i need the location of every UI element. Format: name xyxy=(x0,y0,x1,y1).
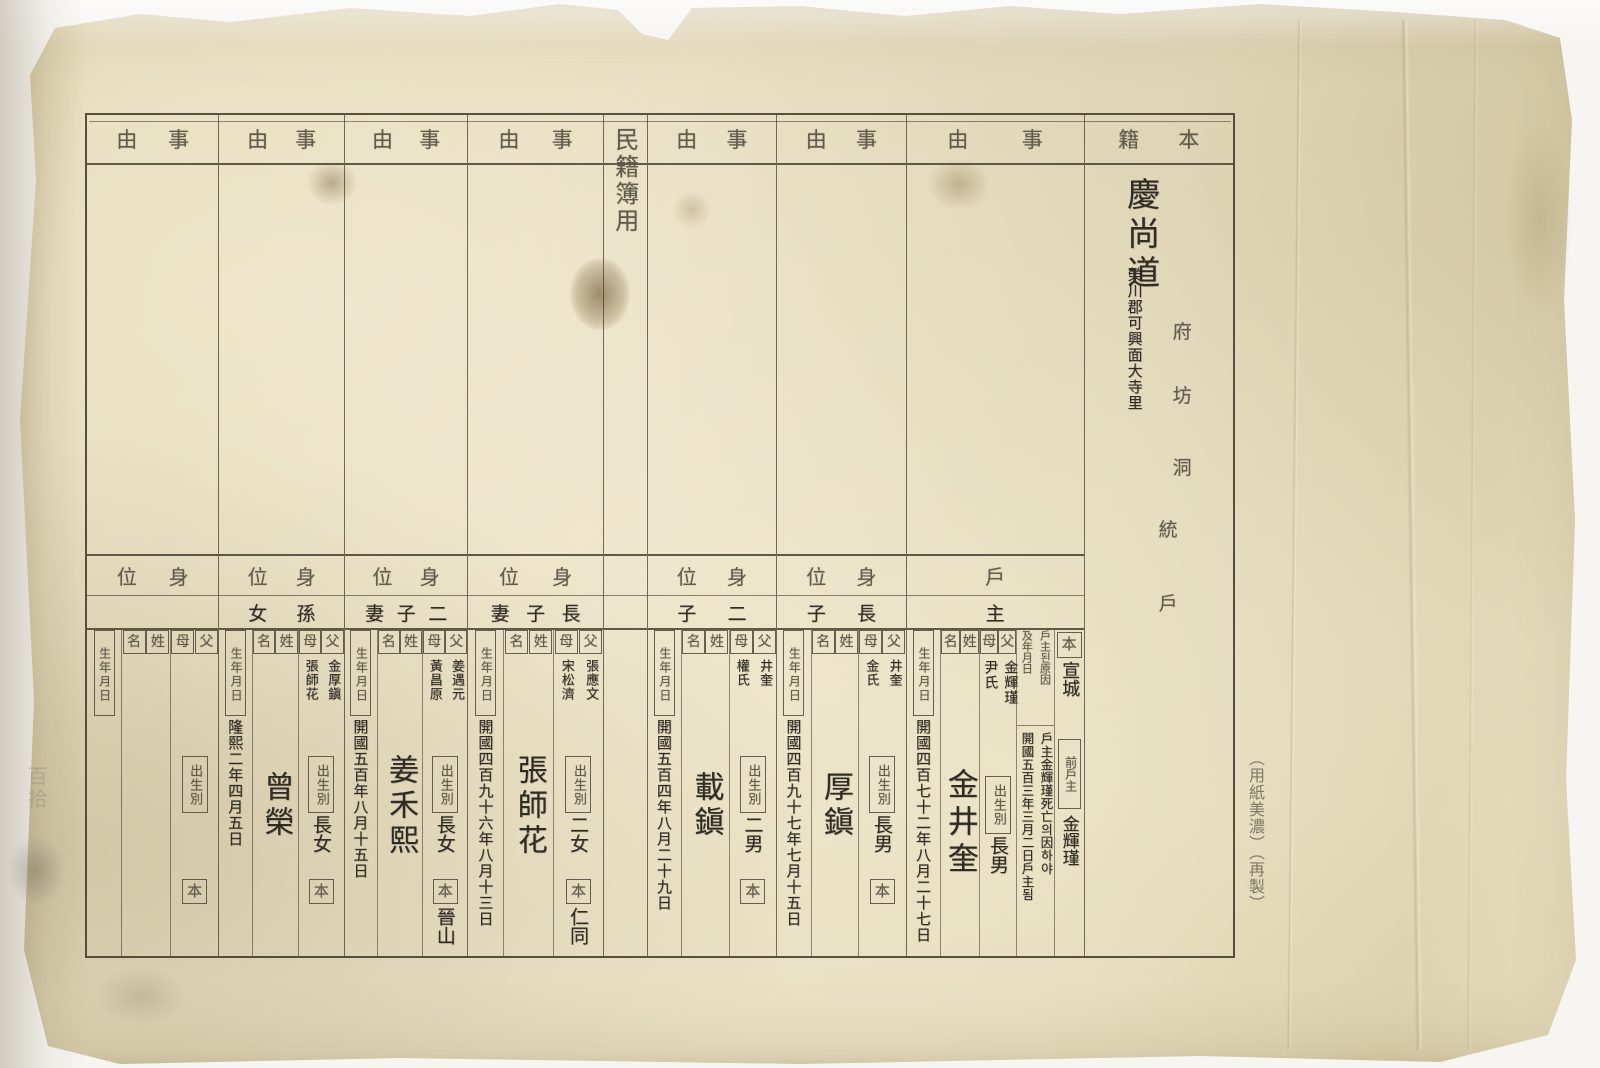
second-son-wife-column: 事由 身位 二子妻 父 母 姜遇元 黃昌原 出生別 長女 本 晉山 xyxy=(344,115,467,956)
member-name: 厚鎭 xyxy=(813,656,857,956)
name-headers: 姓 名 xyxy=(682,630,729,656)
granddaughter-column: 事由 身位 孫女 父 母 金厚鎭 張師花 出生別 長女 本 姓 xyxy=(218,115,343,956)
prev-householder-header: 前戶主 xyxy=(1058,739,1081,809)
template-ho: 戶 xyxy=(1159,589,1178,616)
eldest-son-column: 事由 身位 長子 父 母 井奎 金氏 出生別 長男 本 姓 xyxy=(776,115,905,956)
birth-order-value: 長女 xyxy=(432,815,459,877)
ho-header: 戶 xyxy=(907,554,1084,596)
mother-name: 黃昌原 xyxy=(425,659,444,756)
mother-header: 母 xyxy=(423,630,445,654)
parents-names xyxy=(171,655,219,756)
birth-order-stamp: 出生別 xyxy=(985,776,1011,834)
address-body: 慶尚道 榮川郡可興面大寺里 府 坊 洞 統 戶 xyxy=(1085,165,1233,956)
householder-name: 金井奎 xyxy=(938,656,983,956)
mother-header: 母 xyxy=(299,630,322,654)
father-name: 井奎 xyxy=(755,659,774,756)
birthdate-value: 開國四百七十二年八月二十七日 xyxy=(913,719,934,951)
name-headers: 姓 名 xyxy=(504,630,553,656)
jiyu-blank-area xyxy=(87,165,218,554)
father-name: 張應文 xyxy=(581,659,600,756)
template-tong: 統 xyxy=(1159,515,1178,542)
birthdate-subcolumn: 生年月日 開國五百四年八月二十九日 xyxy=(648,630,681,956)
empty-member-column: 事由 身位 父 母 出生別 本 姓 名 xyxy=(87,115,218,956)
status-value: 孫女 xyxy=(219,596,343,630)
member-name: 姜禾熙 xyxy=(378,656,422,956)
parents-headers: 父 母 xyxy=(423,630,467,655)
bon-stamp: 本 xyxy=(1057,632,1082,658)
birthdate-subcolumn: 生年月日 xyxy=(87,630,121,956)
jiyu-header: 事由 xyxy=(219,115,343,165)
parents-subcolumn: 父 母 金厚鎭 張師花 出生別 長女 本 xyxy=(298,630,344,956)
jiyu-header: 事由 xyxy=(907,115,1084,165)
honseki-header: 本籍 xyxy=(1085,115,1233,165)
mother-header: 母 xyxy=(171,630,194,654)
parents-subcolumn: 父 母 井奎 金氏 出生別 長男 本 xyxy=(858,630,906,956)
member-name: 載鎭 xyxy=(683,656,727,956)
status-header: 身位 xyxy=(345,554,467,596)
birthdate-subcolumn: 生年月日 開國五百年八月十五日 xyxy=(345,630,377,956)
parents-headers: 父 母 xyxy=(554,630,603,655)
parents-subcolumn: 父 母 出生別 本 xyxy=(170,630,219,956)
surname-header: 姓 xyxy=(705,630,728,654)
father-header: 父 xyxy=(321,630,344,654)
birthdate-subcolumn: 生年月日 開國四百九十六年八月十三日 xyxy=(468,630,503,956)
member-data: 父 母 出生別 本 姓 名 生年月日 xyxy=(87,630,218,956)
jiyu-header: 事由 xyxy=(345,115,467,165)
surname-header: 姓 xyxy=(835,630,858,654)
faint-bleedthrough-text: 百拾 xyxy=(22,766,51,810)
jiyu-header: 事由 xyxy=(777,115,905,165)
mother-name: 宋松濟 xyxy=(557,659,576,756)
birthdate-header: 生年月日 xyxy=(225,630,246,716)
householder-column: 事由 戶 主 本 宣城 前戶主 金輝瑾 戶主된原因 及年月日 戶主金輝瑾死亡의因… xyxy=(906,115,1084,956)
parents-subcolumn: 父 母 姜遇元 黃昌原 出生別 長女 本 晉山 xyxy=(422,630,467,956)
status-header: 身位 xyxy=(468,554,602,596)
name-subcolumn: 姓 名 姜禾熙 xyxy=(377,630,422,956)
address-detail: 榮川郡可興面大寺里 xyxy=(1125,267,1146,657)
name-subcolumn: 姓 名 厚鎭 xyxy=(811,630,859,956)
prev-householder-name: 金輝瑾 xyxy=(1057,815,1082,935)
form-title-status-band xyxy=(604,554,647,596)
birthdate-header: 生年月日 xyxy=(94,630,115,716)
birth-order-stamp: 出生別 xyxy=(869,756,895,812)
smudge xyxy=(1504,120,1574,320)
father-header: 父 xyxy=(882,630,905,654)
parents-subcolumn: 父 母 金輝瑾 尹氏 出生別 長男 xyxy=(979,630,1016,956)
givenname-header: 名 xyxy=(123,630,146,654)
status-header: 身位 xyxy=(777,554,905,596)
bon-prev-householder-subcolumn: 本 宣城 前戶主 金輝瑾 xyxy=(1054,630,1084,956)
father-header: 父 xyxy=(195,630,218,654)
torn-top-edge-highlight xyxy=(0,0,1600,46)
mother-header: 母 xyxy=(859,630,882,654)
birth-order-value: 長男 xyxy=(869,815,896,877)
jiyu-blank-area xyxy=(907,165,1084,554)
birth-order-stamp: 出生別 xyxy=(740,756,766,812)
father-header: 父 xyxy=(579,630,602,654)
birthdate-value: 開國五百四年八月二十九日 xyxy=(654,719,675,951)
surname-header: 姓 xyxy=(529,630,552,654)
birthdate-subcolumn: 生年月日 開國四百七十二年八月二十七日 xyxy=(907,630,941,956)
smudge xyxy=(8,836,64,906)
birth-order-stamp: 出生別 xyxy=(308,756,334,812)
name-headers: 姓 名 xyxy=(941,630,979,656)
reason-text-line2: 開國五百三年三月二日戶主됨 xyxy=(1017,732,1036,956)
parents-names: 井奎 金氏 xyxy=(859,655,906,756)
birth-order-stamp: 出生別 xyxy=(182,756,208,812)
clan-name: 仁同 xyxy=(565,907,592,956)
birthdate-header: 生年月日 xyxy=(913,630,934,716)
status-value xyxy=(87,596,218,630)
form-title-column: 民籍簿用 xyxy=(603,115,647,956)
mother-header: 母 xyxy=(980,630,998,654)
parents-names: 井奎 權氏 xyxy=(730,655,777,756)
name-subcolumn: 姓 名 曾榮 xyxy=(252,630,298,956)
paper-spec-stamp: （用紙美濃）（再製） xyxy=(1243,750,1267,912)
member-name: 張師花 xyxy=(507,656,551,956)
form-title-value-band xyxy=(604,596,647,630)
name-headers: 姓 名 xyxy=(122,630,170,656)
template-fu: 府 xyxy=(1173,317,1192,344)
parents-names: 張應文 宋松濟 xyxy=(554,655,603,756)
birth-order-value: 長男 xyxy=(985,836,1012,900)
register-table: 本籍 慶尚道 榮川郡可興面大寺里 府 坊 洞 統 戶 事由 戶 主 本 宣城 前… xyxy=(85,113,1235,958)
father-name: 井奎 xyxy=(884,659,903,756)
birthdate-value: 開國四百九十六年八月十三日 xyxy=(475,719,496,951)
givenname-header: 名 xyxy=(378,630,400,654)
parents-headers: 父 母 xyxy=(171,630,219,655)
smudge xyxy=(96,966,186,1026)
mother-name: 張師花 xyxy=(301,659,320,756)
bon-stamp: 本 xyxy=(566,879,591,904)
name-headers: 姓 名 xyxy=(378,630,422,656)
givenname-header: 名 xyxy=(682,630,705,654)
jiyu-blank-area xyxy=(777,165,905,554)
name-headers: 姓 名 xyxy=(812,630,859,656)
bon-stamp: 本 xyxy=(740,879,765,904)
surname-header: 姓 xyxy=(960,630,979,654)
parents-names: 金輝瑾 尹氏 xyxy=(980,656,1016,776)
father-name: 姜遇元 xyxy=(447,659,466,756)
bon-stamp: 本 xyxy=(309,879,334,904)
status-header: 身位 xyxy=(219,554,343,596)
jiyu-blank-area xyxy=(219,165,343,554)
eldest-son-wife-column: 事由 身位 長子妻 父 母 張應文 宋松濟 出生別 二女 本 仁同 xyxy=(467,115,602,956)
jiyu-header: 事由 xyxy=(648,115,776,165)
status-header: 身位 xyxy=(648,554,776,596)
clan-name: 晉山 xyxy=(432,907,459,956)
father-header: 父 xyxy=(998,630,1016,654)
template-bang: 坊 xyxy=(1173,381,1192,408)
birth-order-stamp: 出生別 xyxy=(432,756,458,812)
birthdate-value: 隆熙二年四月五日 xyxy=(225,719,246,951)
reason-header: 戶主된原因 及年月日 xyxy=(1017,630,1053,726)
member-data: 父 母 井奎 權氏 出生別 二男 本 姓 名 載鎭 生年 xyxy=(648,630,776,956)
birth-order-value: 二女 xyxy=(565,815,592,877)
bon-stamp: 本 xyxy=(182,879,207,904)
mother-header: 母 xyxy=(730,630,753,654)
birthdate-subcolumn: 生年月日 開國四百九十七年七月十五日 xyxy=(777,630,810,956)
reason-header-line1: 戶主된原因 xyxy=(1037,630,1053,725)
status-value: 長子 xyxy=(777,596,905,630)
givenname-header: 名 xyxy=(505,630,528,654)
status-value: 長子妻 xyxy=(468,596,602,630)
mother-name: 金氏 xyxy=(861,659,880,756)
name-subcolumn: 姓 名 張師花 xyxy=(503,630,553,956)
status-header: 身位 xyxy=(87,554,218,596)
name-subcolumn: 姓 名 xyxy=(121,630,170,956)
jiyu-blank-area xyxy=(468,165,602,554)
birthdate-header: 生年月日 xyxy=(475,630,496,716)
jiyu-blank-area xyxy=(345,165,467,554)
member-data: 父 母 井奎 金氏 出生別 長男 本 姓 名 厚鎭 生年 xyxy=(777,630,905,956)
status-value: 二子妻 xyxy=(345,596,467,630)
address-column: 本籍 慶尚道 榮川郡可興面大寺里 府 坊 洞 統 戶 xyxy=(1084,115,1233,956)
father-name: 金厚鎭 xyxy=(323,659,342,756)
mother-name: 權氏 xyxy=(732,659,751,756)
jiyu-header: 事由 xyxy=(87,115,218,165)
reason-text: 戶主金輝瑾死亡의因하야 開國五百三年三月二日戶主됨 xyxy=(1017,726,1053,956)
surname-header: 姓 xyxy=(275,630,298,654)
reason-text-line1: 戶主金輝瑾死亡의因하야 xyxy=(1036,732,1055,956)
member-data: 父 母 張應文 宋松濟 出生別 二女 本 仁同 姓 名 張師花 xyxy=(468,630,602,956)
birth-order-value: 長女 xyxy=(308,815,335,877)
givenname-header: 名 xyxy=(941,630,960,654)
status-value: 二子 xyxy=(648,596,776,630)
parents-subcolumn: 父 母 井奎 權氏 出生別 二男 本 xyxy=(729,630,777,956)
member-data: 父 母 姜遇元 黃昌原 出生別 長女 本 晉山 姓 名 姜禾熙 xyxy=(345,630,467,956)
birthdate-value: 開國四百九十七年七月十五日 xyxy=(783,719,804,951)
surname-header: 姓 xyxy=(146,630,169,654)
reason-subcolumn: 戶主된原因 及年月日 戶主金輝瑾死亡의因하야 開國五百三年三月二日戶主됨 xyxy=(1016,630,1053,956)
birth-order-value: 二男 xyxy=(739,815,766,877)
birthdate-header: 生年月日 xyxy=(350,630,371,716)
jiyu-header: 事由 xyxy=(468,115,602,165)
parents-names: 姜遇元 黃昌原 xyxy=(423,655,467,756)
name-subcolumn: 姓 名 金井奎 xyxy=(940,630,979,956)
bon-origin: 宣城 xyxy=(1056,661,1082,733)
form-title-lower-band xyxy=(604,630,647,956)
parents-headers: 父 母 xyxy=(730,630,777,655)
surname-header: 姓 xyxy=(400,630,422,654)
member-name: 曾榮 xyxy=(253,656,297,956)
bon-stamp: 本 xyxy=(433,879,458,904)
mother-name: 尹氏 xyxy=(980,660,1000,776)
ju-value: 主 xyxy=(907,596,1084,630)
parents-headers: 父 母 xyxy=(980,630,1016,656)
form-title-text: 民籍簿用 xyxy=(608,127,643,235)
birthdate-header: 生年月日 xyxy=(783,630,804,716)
left-edge-shadow xyxy=(0,0,85,1068)
birthdate-value: 開國五百年八月十五日 xyxy=(350,719,371,951)
second-son-column: 事由 身位 二子 父 母 井奎 權氏 出生別 二男 本 姓 xyxy=(647,115,776,956)
givenname-header: 名 xyxy=(253,630,276,654)
name-headers: 姓 名 xyxy=(253,630,298,656)
reason-header-line2: 及年月日 xyxy=(1018,630,1034,725)
birth-order-stamp: 出生別 xyxy=(565,756,591,812)
parents-headers: 父 母 xyxy=(299,630,344,655)
birthdate-subcolumn: 生年月日 隆熙二年四月五日 xyxy=(219,630,251,956)
father-header: 父 xyxy=(445,630,467,654)
householder-data: 本 宣城 前戶主 金輝瑾 戶主된原因 及年月日 戶主金輝瑾死亡의因하야 開國五百… xyxy=(907,630,1084,956)
template-dong: 洞 xyxy=(1173,453,1192,480)
member-data: 父 母 金厚鎭 張師花 出生別 長女 本 姓 名 曾榮 xyxy=(219,630,343,956)
name-subcolumn: 姓 名 載鎭 xyxy=(681,630,729,956)
bon-stamp: 本 xyxy=(870,879,895,904)
parents-names: 金厚鎭 張師花 xyxy=(299,655,344,756)
mother-header: 母 xyxy=(555,630,578,654)
jiyu-blank-area xyxy=(648,165,776,554)
parents-headers: 父 母 xyxy=(859,630,906,655)
parents-subcolumn: 父 母 張應文 宋松濟 出生別 二女 本 仁同 xyxy=(553,630,603,956)
birthdate-header: 生年月日 xyxy=(654,630,675,716)
father-header: 父 xyxy=(753,630,776,654)
givenname-header: 名 xyxy=(812,630,835,654)
